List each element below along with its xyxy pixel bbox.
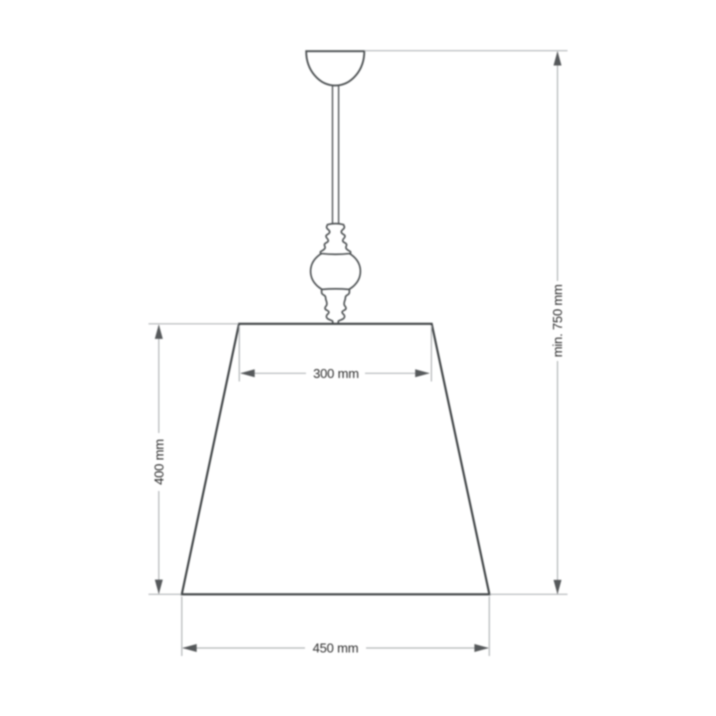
svg-text:450 mm: 450 mm (313, 641, 359, 656)
svg-text:300 mm: 300 mm (313, 366, 359, 381)
svg-text:400 mm: 400 mm (152, 439, 167, 485)
svg-text:min. 750 mm: min. 750 mm (550, 284, 565, 357)
